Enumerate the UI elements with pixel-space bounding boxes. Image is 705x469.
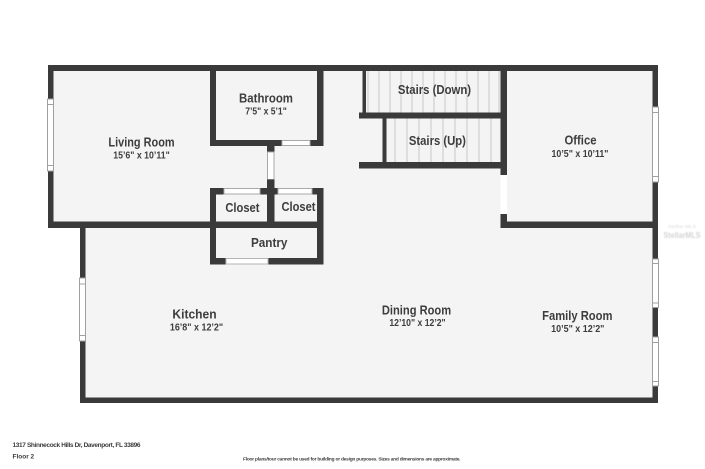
svg-text:Office: Office <box>565 133 597 148</box>
svg-text:Stairs (Up): Stairs (Up) <box>409 133 466 148</box>
svg-text:Bathroom: Bathroom <box>239 90 293 105</box>
svg-text:12’10" x 12’2": 12’10" x 12’2" <box>389 317 445 329</box>
svg-text:StellarMLS: StellarMLS <box>664 231 701 240</box>
svg-text:Living Room: Living Room <box>108 134 174 149</box>
svg-text:Closet: Closet <box>225 200 260 215</box>
svg-text:1317 Shinnecock Hills Dr, Dave: 1317 Shinnecock Hills Dr, Davenport, FL … <box>13 442 141 449</box>
svg-text:7’5" x 5’1": 7’5" x 5’1" <box>245 105 287 117</box>
svg-text:Dining Room: Dining Room <box>382 302 451 317</box>
svg-text:Stellar MLS: Stellar MLS <box>668 224 696 229</box>
svg-text:Stairs (Down): Stairs (Down) <box>398 82 471 97</box>
svg-text:Family Room: Family Room <box>542 308 612 323</box>
svg-text:Floor plans/tour cannot be use: Floor plans/tour cannot be used for buil… <box>243 456 461 462</box>
svg-text:Pantry: Pantry <box>251 235 288 250</box>
svg-text:15’6" x 10’11": 15’6" x 10’11" <box>113 150 170 162</box>
svg-text:Kitchen: Kitchen <box>172 306 216 321</box>
svg-text:Floor 2: Floor 2 <box>13 453 35 460</box>
svg-text:16’8" x 12’2": 16’8" x 12’2" <box>170 322 223 334</box>
svg-text:10’5" x 12’2": 10’5" x 12’2" <box>551 323 604 335</box>
svg-text:Closet: Closet <box>282 199 317 214</box>
svg-text:10’5" x 10’11": 10’5" x 10’11" <box>552 148 609 160</box>
